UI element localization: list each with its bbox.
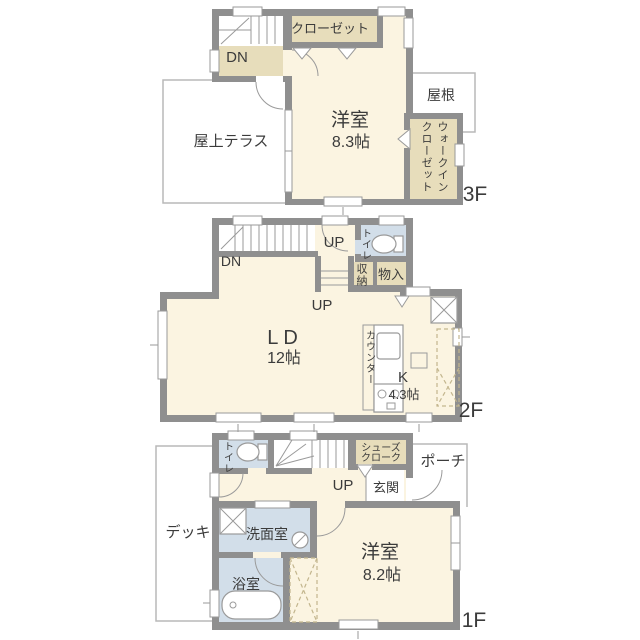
label-bedroom-name-1f: 洋室 xyxy=(361,541,399,563)
label-bedroom-size-3f: 8.3帖 xyxy=(332,133,370,151)
label-deck-1f: デッキ xyxy=(165,523,210,541)
label-floor-1f: 1F xyxy=(462,609,487,632)
floor-2f: UP トイレ DN 収納 物入 UP LD 12帖 カウンター K 4.3帖 2… xyxy=(158,216,483,422)
label-wic-line1-3f: ウォークイン xyxy=(436,121,448,193)
floor-1f: トイレ シューズ クローク ポーチ UP 玄関 デッキ 洗面室 浴室 洋室 8.… xyxy=(156,431,486,632)
label-toilet-2f: トイレ xyxy=(360,228,372,261)
label-bedroom-name-3f: 洋室 xyxy=(331,109,369,131)
label-counter-2f: カウンター xyxy=(364,330,376,385)
label-kitchen-name-2f: K xyxy=(398,369,408,386)
label-up-bottom-2f: UP xyxy=(312,297,333,314)
label-terrace-3f: 屋上テラス xyxy=(194,133,269,150)
toilet-icon-1f xyxy=(237,443,267,461)
label-washroom-1f: 洗面室 xyxy=(246,526,288,542)
label-up-1f: UP xyxy=(333,477,354,494)
label-toilet-1f: トイレ xyxy=(222,441,234,474)
label-bathroom-1f: 浴室 xyxy=(232,576,260,592)
label-entrance-1f: 玄関 xyxy=(373,480,399,495)
label-bedroom-size-1f: 8.2帖 xyxy=(363,566,401,584)
sink-icon-1f xyxy=(292,532,308,548)
label-up-top-2f: UP xyxy=(324,234,345,251)
label-storage-cabinet-2f: 物入 xyxy=(378,267,404,282)
floor-plan-drawing: クローゼット DN 洋室 8.3帖 屋根 屋上テラス ウォークイン クローゼット… xyxy=(0,0,640,640)
room-walkin-closet-3f xyxy=(410,119,457,199)
toilet-icon-2f xyxy=(372,235,403,253)
label-wic-line2-3f: クローゼット xyxy=(420,121,433,193)
bathtub-icon-1f xyxy=(222,591,281,619)
floor-plan-page: クローゼット DN 洋室 8.3帖 屋根 屋上テラス ウォークイン クローゼット… xyxy=(0,0,640,640)
label-floor-3f: 3F xyxy=(463,183,488,206)
label-shoe-closet-line2-1f: クローク xyxy=(361,452,401,464)
label-ld-size-2f: 12帖 xyxy=(267,349,301,367)
label-dn-3f: DN xyxy=(226,49,248,66)
label-closet-3f: クローゼット xyxy=(291,21,369,36)
label-roof-3f: 屋根 xyxy=(427,87,455,103)
label-floor-2f: 2F xyxy=(459,399,484,422)
label-kitchen-size-2f: 4.3帖 xyxy=(388,387,419,402)
label-dn-2f: DN xyxy=(221,253,241,269)
door-opening-hall-bedroom-3f xyxy=(283,50,292,76)
door-opening-terrace-3f xyxy=(256,76,283,82)
washer-icon-1f xyxy=(220,508,246,534)
refrigerator-icon-2f xyxy=(431,297,457,323)
label-porch-1f: ポーチ xyxy=(420,453,465,470)
label-ld-name-2f: LD xyxy=(267,327,303,349)
label-storage-closet-2f: 収納 xyxy=(355,263,368,287)
floor-3f: クローゼット DN 洋室 8.3帖 屋根 屋上テラス ウォークイン クローゼット… xyxy=(163,7,487,206)
